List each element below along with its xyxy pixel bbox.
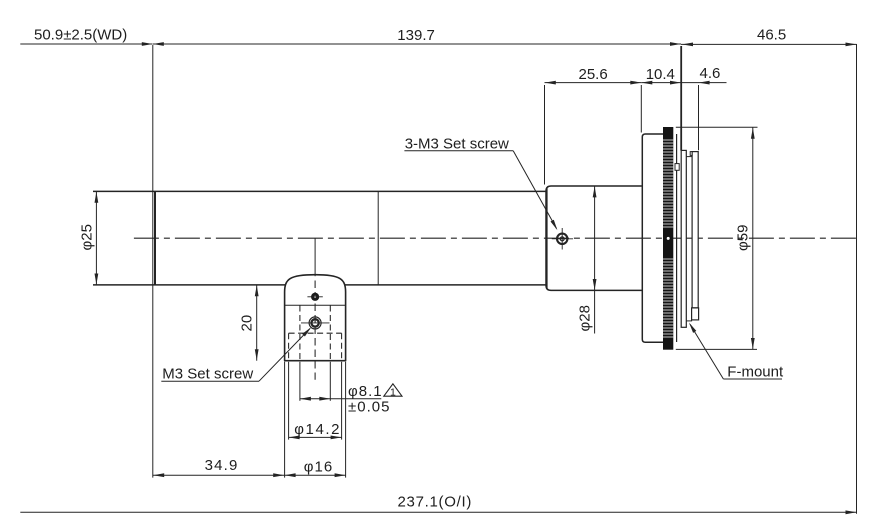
svg-text:139.7: 139.7 (397, 27, 435, 44)
svg-text:φ16: φ16 (304, 459, 333, 476)
svg-text:φ59: φ59 (735, 225, 752, 251)
svg-text:50.9±2.5(WD): 50.9±2.5(WD) (34, 27, 127, 44)
svg-text:10.4: 10.4 (646, 66, 675, 83)
svg-text:237.1(O/I): 237.1(O/I) (398, 494, 473, 511)
svg-text:φ28: φ28 (577, 305, 594, 331)
svg-text:25.6: 25.6 (579, 66, 608, 83)
svg-text:±0.05: ±0.05 (348, 399, 390, 416)
svg-text:4.6: 4.6 (700, 65, 721, 82)
svg-text:φ8.1: φ8.1 (348, 383, 383, 400)
svg-text:φ14.2: φ14.2 (294, 421, 341, 438)
svg-text:M3 Set screw: M3 Set screw (162, 366, 253, 383)
svg-text:φ25: φ25 (79, 224, 96, 250)
svg-text:3-M3 Set screw: 3-M3 Set screw (405, 136, 509, 153)
svg-text:F-mount: F-mount (727, 364, 784, 381)
svg-text:46.5: 46.5 (757, 27, 786, 44)
svg-text:1: 1 (390, 386, 396, 398)
svg-text:34.9: 34.9 (205, 457, 239, 474)
svg-text:20: 20 (239, 315, 256, 332)
